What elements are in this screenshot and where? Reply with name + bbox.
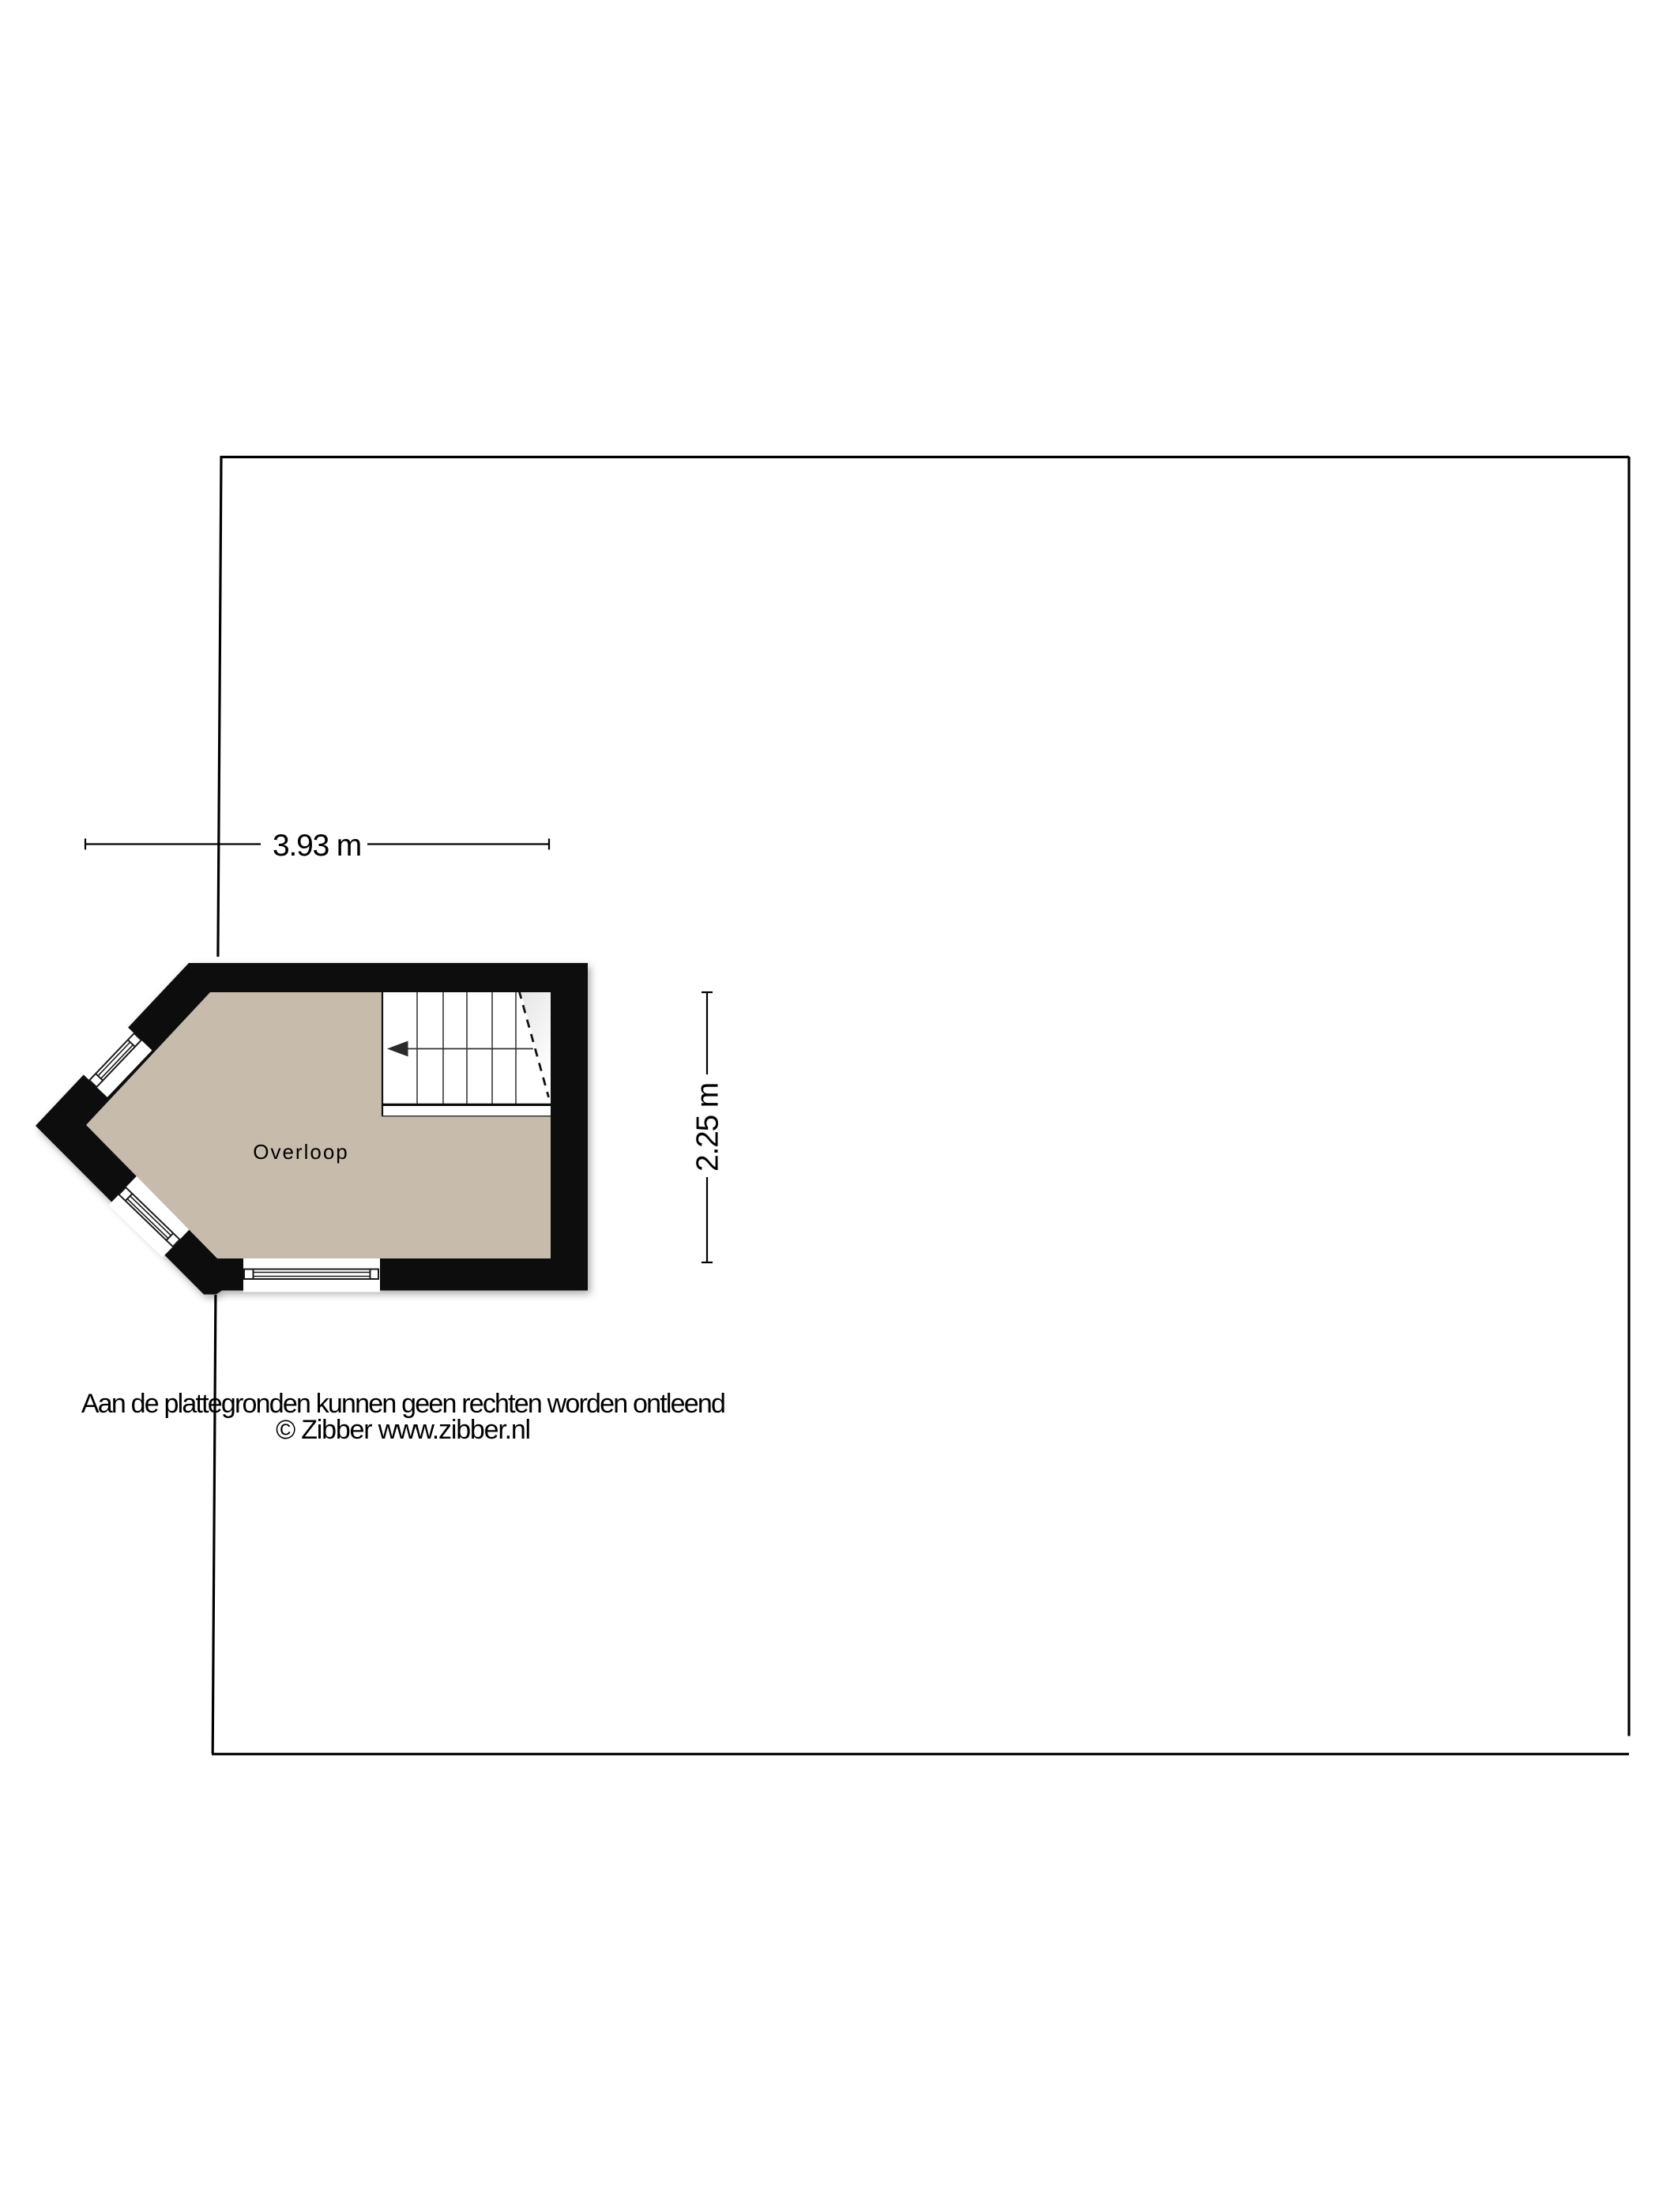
svg-text:3.93 m: 3.93 m <box>273 829 361 863</box>
svg-text:2.25 m: 2.25 m <box>691 1083 725 1172</box>
svg-text:Overloop: Overloop <box>253 1140 349 1164</box>
svg-text:© Zibber www.zibber.nl: © Zibber www.zibber.nl <box>276 1415 530 1445</box>
